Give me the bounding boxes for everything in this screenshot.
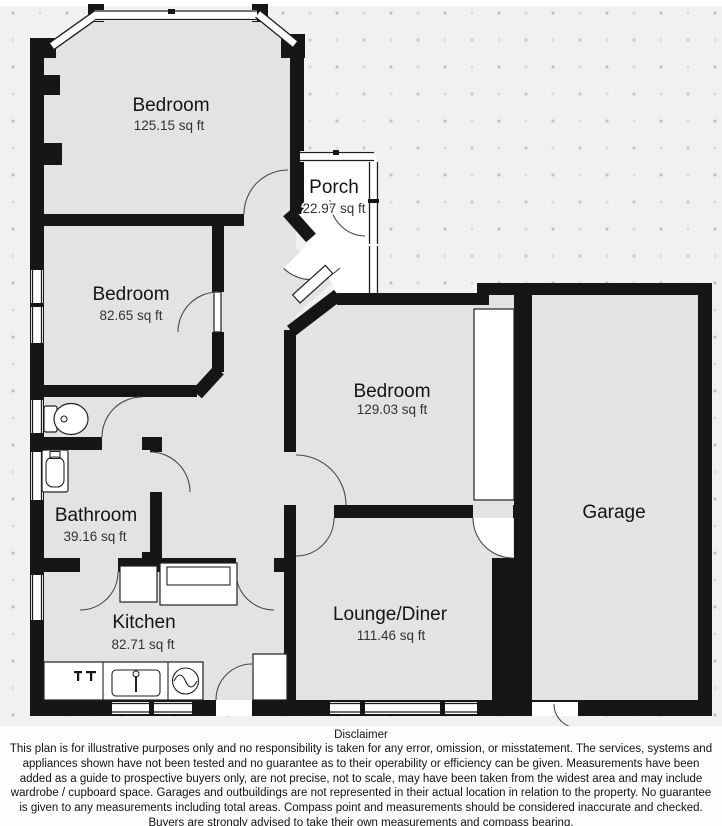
room-label-bathroom: Bathroom 39.16 sq ft [55,505,137,544]
svg-text:22.97 sq ft: 22.97 sq ft [302,201,365,216]
room-label-kitchen: Kitchen 82.71 sq ft [111,612,175,652]
floor-plan-svg: Bedroom 125.15 sq ft Bedroom 82.65 sq ft… [0,0,722,726]
room-label-bedroom-front: Bedroom 125.15 sq ft [132,95,209,133]
svg-text:Bathroom: Bathroom [55,505,137,526]
svg-text:Garage: Garage [582,502,645,523]
svg-text:129.03 sq ft: 129.03 sq ft [357,402,428,417]
kitchen-worktop [120,563,237,605]
svg-text:Bedroom: Bedroom [132,95,209,116]
room-label-bedroom-middle: Bedroom 82.65 sq ft [92,284,169,323]
svg-text:82.71 sq ft: 82.71 sq ft [111,637,174,652]
disclaimer-body: This plan is for illustrative purposes o… [0,741,722,826]
rear-lobby-unit [253,654,287,700]
svg-text:Kitchen: Kitchen [112,612,175,633]
svg-text:Bedroom: Bedroom [353,381,430,402]
wardrobe [474,309,514,500]
svg-text:Porch: Porch [309,177,359,198]
kitchen-counter [44,662,203,700]
svg-text:82.65 sq ft: 82.65 sq ft [99,308,162,323]
disclaimer-title: Disclaimer [0,729,722,741]
toilet-icon [44,404,88,435]
floorplan-page: Bedroom 125.15 sq ft Bedroom 82.65 sq ft… [0,0,722,826]
room-label-garage: Garage [582,502,645,523]
svg-text:Lounge/Diner: Lounge/Diner [333,604,448,625]
svg-text:Bedroom: Bedroom [92,284,169,305]
room-label-porch: Porch 22.97 sq ft [302,177,365,216]
disclaimer: Disclaimer This plan is for illustrative… [0,726,722,826]
svg-text:39.16 sq ft: 39.16 sq ft [63,529,126,544]
floor-plan: Bedroom 125.15 sq ft Bedroom 82.65 sq ft… [0,0,722,726]
svg-text:111.46 sq ft: 111.46 sq ft [357,628,426,643]
room-label-bedroom-rear: Bedroom 129.03 sq ft [353,381,430,417]
bathroom-sink-icon [42,450,68,492]
svg-text:125.15 sq ft: 125.15 sq ft [134,118,205,133]
door-leaf-bedroom-middle [214,292,221,332]
